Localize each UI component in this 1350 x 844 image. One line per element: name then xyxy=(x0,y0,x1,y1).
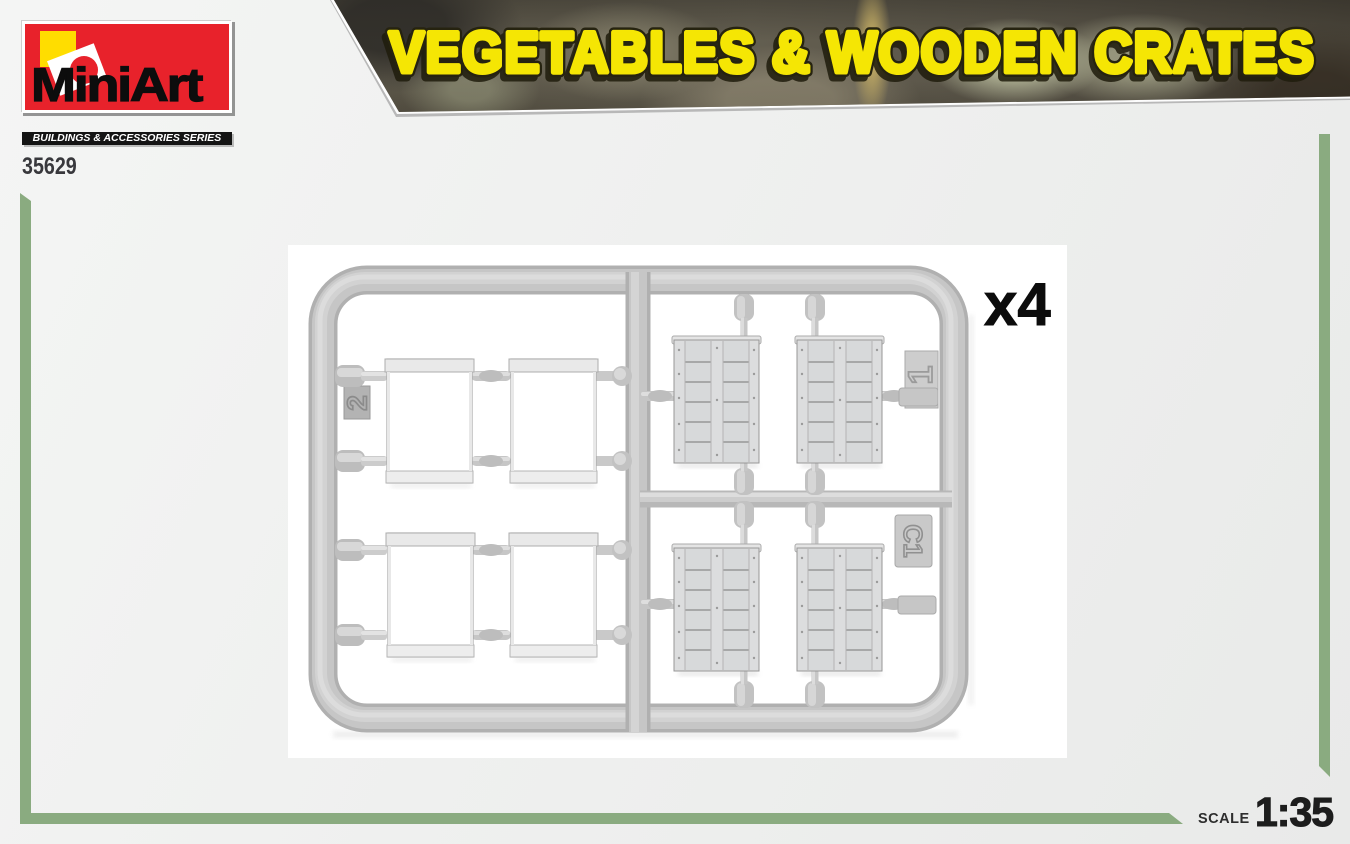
svg-text:C1: C1 xyxy=(898,524,928,557)
svg-text:VEGETABLES & WOODEN CRATES: VEGETABLES & WOODEN CRATES xyxy=(389,20,1315,85)
svg-text:1: 1 xyxy=(902,366,940,385)
svg-text:2: 2 xyxy=(342,395,373,411)
svg-text:x4: x4 xyxy=(984,271,1051,338)
